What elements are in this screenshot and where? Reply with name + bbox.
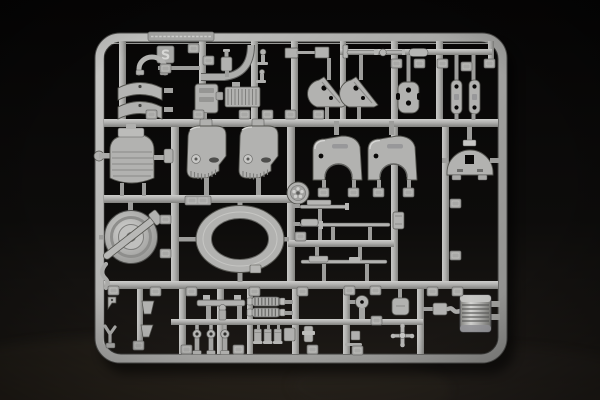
vignette-overlay bbox=[0, 0, 600, 400]
sprue-photo: S bbox=[0, 0, 600, 400]
photo-canvas: Close-up photograph of a light gray inje… bbox=[0, 0, 600, 400]
